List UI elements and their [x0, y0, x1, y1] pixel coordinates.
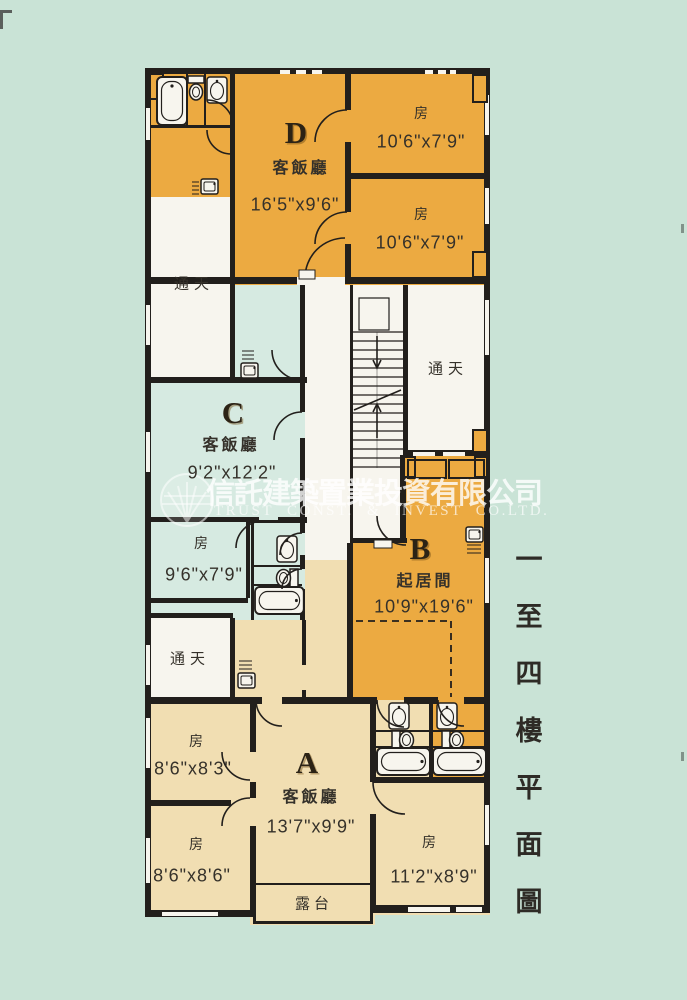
- unit-b-living-dims: 10'9"x19'6": [374, 597, 474, 618]
- unit-a-living-label: 客飯廳: [282, 783, 339, 807]
- bathtub-icon: [255, 587, 304, 614]
- toilet-icon: [277, 569, 299, 587]
- unit-a-room3-label: 房: [422, 832, 438, 852]
- kitchen-sink-icon: [238, 673, 255, 688]
- unit-b-letter: B: [410, 531, 431, 567]
- unit-b-living-label: 起居間: [396, 567, 453, 591]
- corridor: [305, 285, 352, 560]
- toilet-icon: [392, 731, 414, 749]
- lightwell-label-bottom: 通天: [170, 648, 210, 669]
- toilet-icon: [442, 731, 464, 749]
- unit-a-room3-dims: 11'2"x8'9": [390, 867, 477, 888]
- unit-a-room2-label: 房: [189, 834, 205, 854]
- unit-d-living-label: 客飯廳: [272, 154, 329, 178]
- kitchen-sink-icon: [241, 363, 258, 378]
- bathtub-icon: [433, 748, 486, 775]
- scan-corner-mark: [0, 10, 12, 29]
- unit-a-room2-dims: 8'6"x8'6": [153, 866, 231, 887]
- unit-c-letter: C: [222, 395, 244, 431]
- edge-speck: [681, 752, 684, 761]
- unit-a-letter: A: [296, 745, 318, 781]
- unit-c-living-dims: 9'2"x12'2": [188, 463, 277, 484]
- unit-a-room1-dims: 8'6"x8'3": [154, 759, 232, 780]
- unit-d-living-dims: 16'5"x9'6": [251, 195, 340, 216]
- unit-d-room1-dims: 10'6"x7'9": [377, 132, 466, 153]
- kitchen-sink-icon: [466, 527, 483, 542]
- unit-d-room2-dims: 10'6"x7'9": [376, 233, 465, 254]
- unit-d-room1-label: 房: [414, 103, 430, 123]
- sink-icon: [437, 703, 457, 729]
- unit-a-room1-label: 房: [189, 731, 205, 751]
- unit-c-room-label: 房: [194, 533, 210, 553]
- stairwell: [352, 285, 405, 543]
- entry-corridor-area: [305, 558, 352, 700]
- unit-a-living-dims: 13'7"x9'9": [267, 817, 356, 838]
- lightwell-label-top: 通天: [174, 273, 214, 294]
- page-title-vertical: 一至四樓平面圖: [508, 545, 547, 944]
- bathtub-icon: [377, 748, 430, 775]
- balcony-label: 露台: [295, 893, 333, 914]
- toilet-icon: [188, 76, 204, 100]
- unit-d-room2-label: 房: [414, 204, 430, 224]
- bathtub-icon: [157, 77, 187, 125]
- unit-c-room-dims: 9'6"x7'9": [165, 565, 243, 586]
- unit-d-letter: D: [285, 115, 307, 151]
- kitchen-sink-icon: [201, 179, 218, 194]
- lightwell-label-right: 通天: [428, 358, 468, 379]
- brochure-page: 信託建築置業投資有限公司 TRUST CONST. & INVEST CO.LT…: [0, 0, 687, 1000]
- floor-plan-drawing: [0, 0, 687, 1000]
- sink-icon: [207, 77, 227, 103]
- unit-c-living-label: 客飯廳: [202, 431, 259, 455]
- edge-speck: [681, 224, 684, 233]
